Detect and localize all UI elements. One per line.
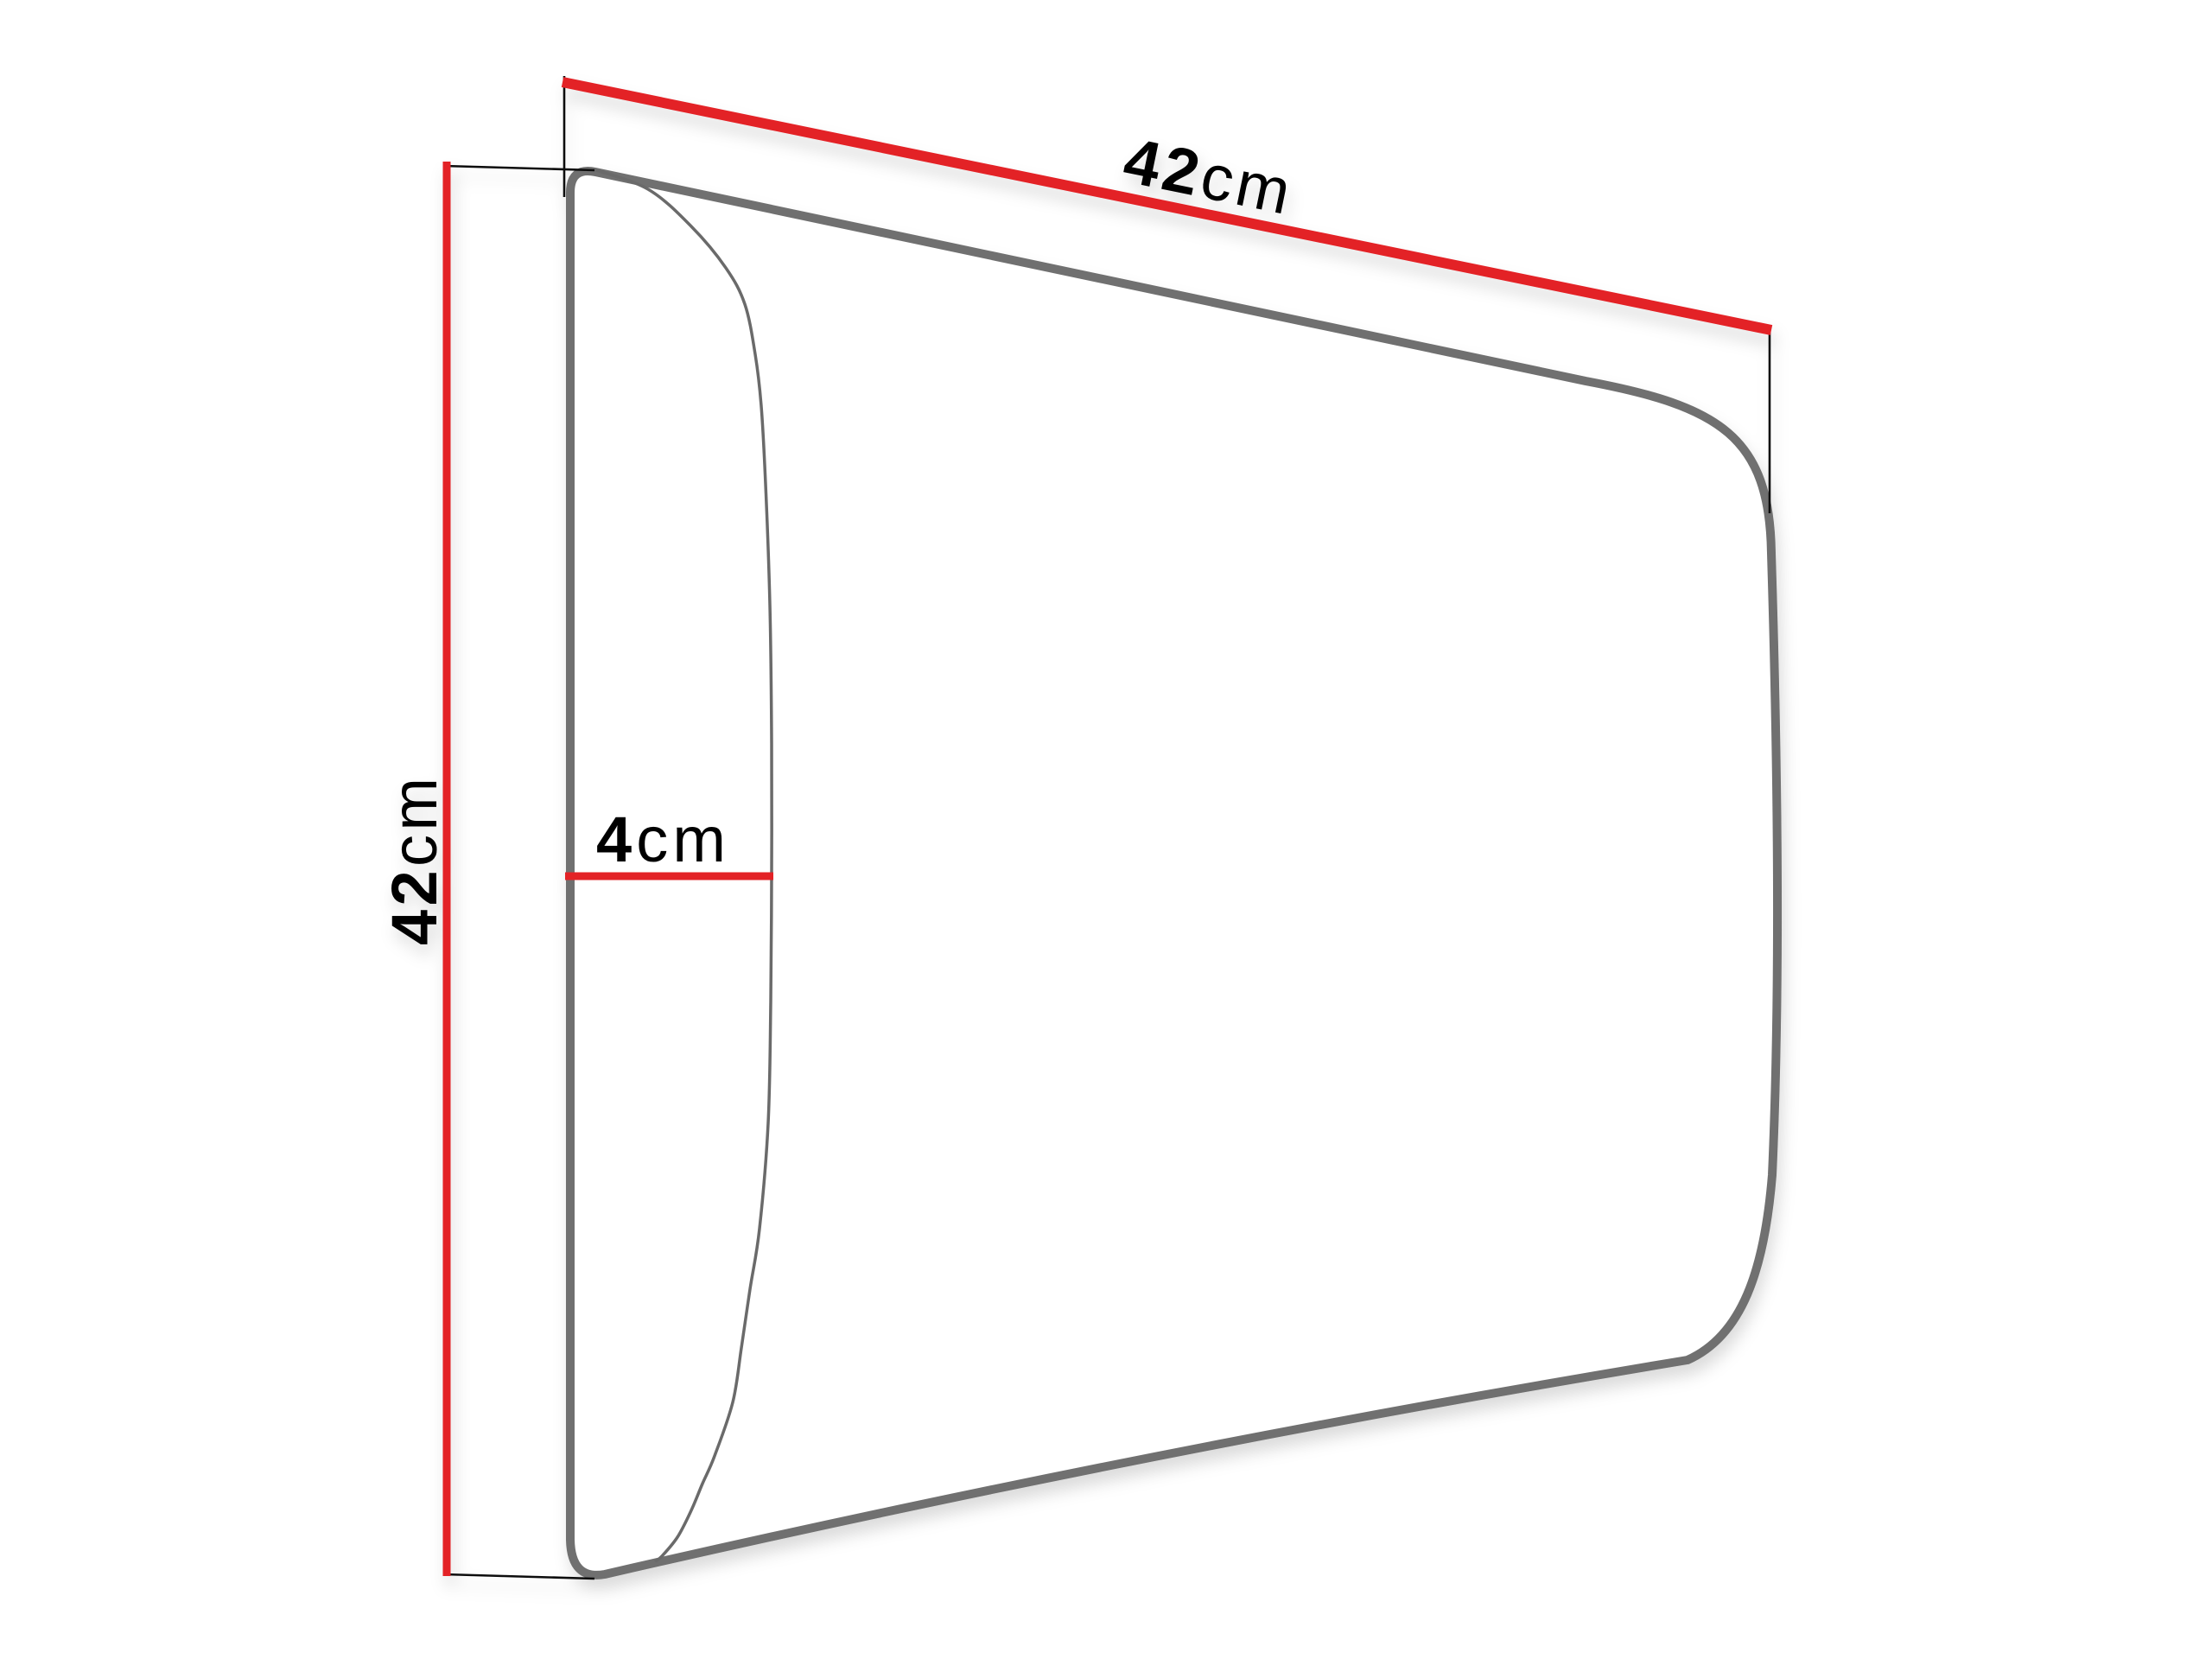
svg-text:42cm: 42cm: [378, 778, 450, 945]
svg-text:4cm: 4cm: [596, 804, 726, 875]
svg-text:42cm: 42cm: [1118, 124, 1297, 227]
